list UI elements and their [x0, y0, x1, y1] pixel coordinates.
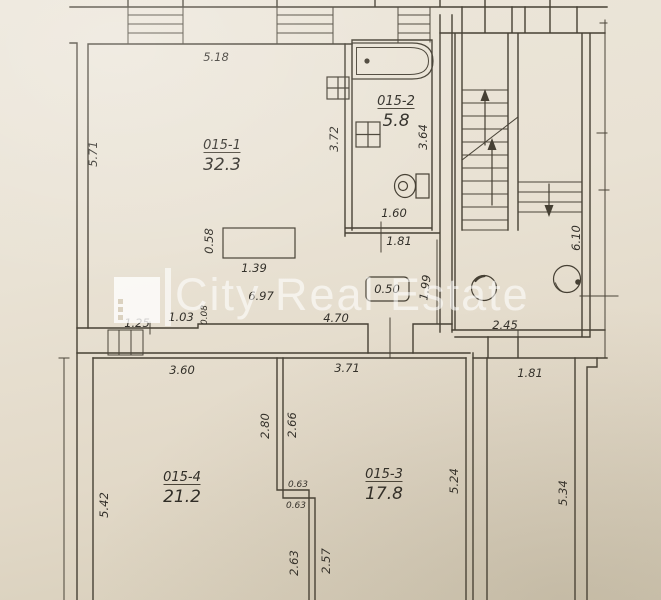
dim-bath-inner-width: 1.60 — [381, 206, 407, 220]
dim-bath-right: 3.64 — [416, 124, 430, 150]
room-label-room4: 015-4 21.2 — [163, 470, 201, 507]
dim-landing-width: 2.45 — [492, 318, 518, 332]
dim-strip-right: 5.34 — [556, 480, 570, 506]
dim-strip-top: 1.81 — [517, 366, 543, 380]
dim-room1-left: 5.71 — [86, 141, 100, 167]
dim-hall-right-width: 4.70 — [323, 311, 349, 325]
washbasin-icon — [356, 122, 380, 147]
dim-divider-upper-right: 2.66 — [285, 412, 299, 438]
round-fixture-icon — [554, 266, 581, 293]
dim-seg-mid: 1.03 — [168, 310, 194, 324]
window-icon — [277, 7, 333, 44]
room-id: 015-1 — [203, 138, 241, 153]
dim-counter-depth: 0.58 — [202, 228, 216, 254]
floor-plan-photo: 5.18 5.71 3.72 3.64 1.60 1.81 0.58 1.39 … — [0, 0, 661, 600]
dim-room1-top: 5.18 — [203, 50, 229, 64]
dim-room4-left: 5.42 — [97, 492, 111, 518]
dim-room3-right: 5.24 — [447, 468, 461, 494]
dim-wall-jog: 0.08 — [200, 305, 210, 325]
vent-shaft-icon — [108, 330, 143, 355]
dim-niche-box: 0.50 — [374, 282, 400, 296]
stairs-up-arrow-icon — [481, 89, 497, 205]
room-label-room3: 015-3 17.8 — [365, 467, 403, 504]
room-id: 015-2 — [377, 94, 415, 109]
lower-walls — [59, 353, 575, 600]
room-area: 21.2 — [163, 487, 201, 507]
stair-treads — [462, 90, 582, 230]
room-label-living: 015-1 32.3 — [203, 138, 241, 175]
toilet-icon — [395, 174, 430, 198]
window-icon — [398, 7, 430, 42]
dim-bath-outer-width: 1.81 — [386, 234, 412, 248]
dim-counter-width: 1.39 — [241, 261, 267, 275]
room-area: 17.8 — [365, 484, 403, 504]
round-fixture-icon — [472, 276, 497, 301]
room-area: 32.3 — [203, 155, 241, 175]
dim-divider-lower-left: 2.63 — [287, 550, 301, 576]
room-id: 015-4 — [163, 470, 201, 485]
dim-divider-jog-lower: 0.63 — [286, 501, 306, 511]
dim-divider-lower-right: 2.57 — [319, 548, 333, 574]
dim-bath-left: 3.72 — [327, 126, 341, 152]
stairwell — [440, 7, 605, 337]
floor-plan-drawing: 5.18 5.71 3.72 3.64 1.60 1.81 0.58 1.39 … — [0, 0, 661, 600]
right-boundary — [580, 20, 618, 600]
dim-seg-left: 1.25 — [124, 316, 150, 330]
dim-stair-height: 6.10 — [569, 225, 583, 251]
room-label-bathroom: 015-2 5.8 — [377, 94, 415, 131]
room-id: 015-3 — [365, 467, 403, 482]
dim-divider-jog-upper: 0.63 — [288, 480, 308, 490]
dim-room4-top: 3.60 — [169, 363, 195, 377]
dim-divider-upper-left: 2.80 — [258, 413, 272, 439]
bathtub-icon — [352, 43, 433, 79]
room-area: 5.8 — [382, 111, 409, 131]
dim-hall-width: 6.97 — [248, 289, 274, 303]
dim-room3-top: 3.71 — [334, 361, 360, 375]
window-icon — [128, 7, 183, 44]
dim-hall-height: 1.99 — [416, 274, 433, 301]
counter — [223, 228, 295, 258]
